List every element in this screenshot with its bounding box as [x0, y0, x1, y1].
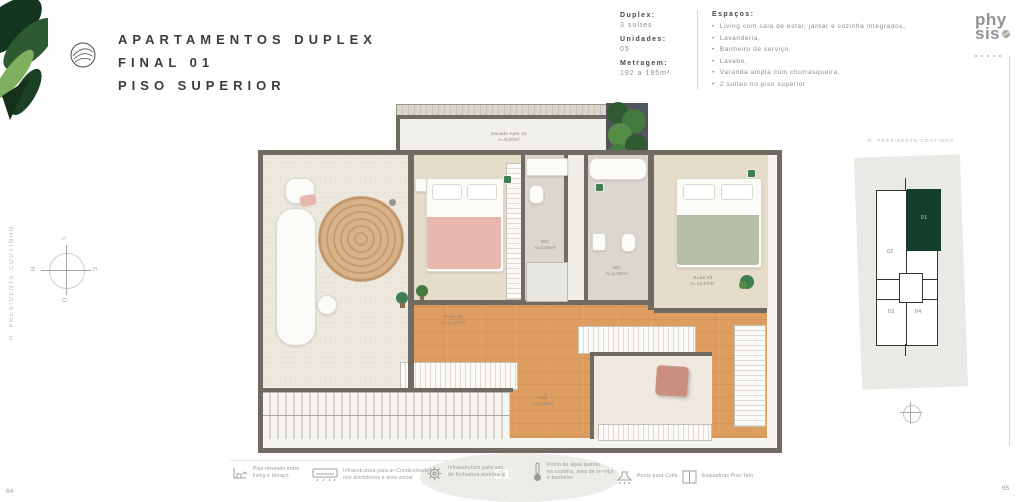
wc2-sink — [592, 233, 606, 251]
key-plan: R. PRESIDENTE COUTINHO 01 02 03 04 — [855, 138, 970, 438]
spec-label-unidades: Unidades: — [620, 36, 690, 43]
wall — [408, 150, 414, 390]
compass-rose: L N S O — [36, 238, 94, 304]
street-label-left: R. PRESIDENTE COUTINHO — [9, 200, 15, 340]
unit-01-highlight: 01 — [907, 189, 941, 251]
unit-divider — [906, 299, 907, 345]
suite02-area: A=17,07m² — [433, 320, 473, 326]
legend-text-line: e banheiro — [547, 475, 614, 482]
compass-circle — [49, 253, 85, 289]
wall — [584, 155, 588, 302]
legend-item-window: Esquadrias Piso-Teto — [682, 470, 753, 484]
title-leaf-icon — [70, 42, 96, 68]
compass-axis-horizontal — [41, 270, 91, 271]
level-icon — [232, 466, 248, 482]
pillow — [721, 184, 753, 200]
nightstand — [415, 178, 427, 192]
space-item: Varanda ampla com churrasqueira, — [712, 67, 912, 79]
door-marker — [748, 170, 755, 177]
thermometer-icon — [533, 462, 542, 482]
spaces-column: Espaços: Living com sala de estar, janta… — [712, 11, 912, 90]
bed-suite02 — [426, 178, 504, 272]
legend-text-line: de fechadura eletrônica — [448, 472, 505, 479]
keyplan-street-label: R. PRESIDENTE COUTINHO — [868, 138, 970, 143]
spec-value-unidades: 05 — [620, 46, 690, 53]
spaces-heading: Espaços: — [712, 11, 912, 18]
keyplan-compass-axis — [900, 412, 922, 413]
blanket-sage — [677, 215, 759, 265]
leaf-photo — [0, 0, 48, 124]
page-title: APARTAMENTOS DUPLEX FINAL 01 PISO SUPERI… — [118, 28, 377, 97]
wardrobe-hall — [578, 326, 696, 354]
logo-subtext — [975, 44, 1010, 62]
page-number-right: 65 — [1002, 485, 1009, 492]
side-table — [317, 295, 337, 315]
legend-text-line: Esquadrias Piso-Teto — [702, 473, 753, 480]
pillow — [683, 184, 715, 200]
wc2-bathtub — [589, 158, 647, 180]
pillow — [467, 184, 497, 200]
floor-plan: Sacada Apto 01 A=9,00m² — [255, 95, 775, 447]
keyplan-compass — [900, 402, 922, 424]
page-number-left: 64 — [6, 488, 13, 495]
right-page-divider — [1009, 56, 1010, 446]
space-item: Lavanderia, — [712, 33, 912, 45]
wc2-area: A=4,06m² — [597, 271, 637, 277]
title-line-1: APARTAMENTOS DUPLEX — [118, 28, 377, 51]
brochure-page: APARTAMENTOS DUPLEX FINAL 01 PISO SUPERI… — [0, 0, 1024, 502]
legend-item-lock: Infraestrutura para uso de fechadura ele… — [426, 465, 505, 482]
bed-suite03 — [676, 178, 762, 268]
title-line-3: PISO SUPERIOR — [118, 74, 377, 97]
wall — [263, 388, 513, 392]
legend-text-line: living e terraço — [253, 473, 299, 480]
leaf-photo-graphic — [0, 0, 48, 124]
legend-item-ac: Infraestrutura para ar-Condicionado nos … — [312, 468, 429, 482]
keyplan-axis-tick — [905, 178, 906, 190]
window-icon — [682, 470, 697, 484]
wall — [521, 155, 525, 302]
unit-04-label: 04 — [915, 309, 922, 315]
hall-label: Hall A=2,06m² — [523, 395, 563, 407]
space-item: 2 suítes no piso superior — [712, 79, 912, 91]
space-item: Banheiro de serviço, — [712, 44, 912, 56]
space-item: Lavabo, — [712, 56, 912, 68]
wardrobe-left — [400, 362, 518, 390]
suite03-label: Suíte 03 A=12,07m² — [683, 275, 723, 287]
suite03-area: A=12,07m² — [683, 281, 723, 287]
unit-02-label: 02 — [887, 249, 894, 255]
wc1-label: WC A=3,06m² — [525, 239, 565, 251]
suite02-label: Suíte 02 A=17,07m² — [433, 314, 473, 326]
hood-icon — [617, 471, 632, 484]
wc1-shower — [526, 262, 568, 302]
wall — [590, 352, 594, 439]
stair-handrail — [263, 415, 510, 416]
wardrobe-bottom — [598, 424, 712, 441]
unit-03-label: 03 — [888, 309, 895, 315]
building-core — [899, 273, 923, 303]
pouf — [655, 365, 689, 397]
sofa-chaise — [276, 208, 316, 346]
blanket-pink — [427, 217, 501, 269]
legend-text-line: Infraestrutura para ar-Condicionado — [343, 468, 429, 475]
keyplan-compass-circle — [903, 405, 921, 423]
wall — [654, 308, 767, 313]
balcony-label: Sacada Apto 01 A=9,00m² — [400, 131, 618, 143]
wardrobe-right — [734, 325, 766, 427]
logo-line-2: sis — [975, 27, 1000, 41]
spec-label-metragem: Metragem: — [620, 60, 690, 67]
legend-item-hot-water: Ponto de água quente na cozinha, área de… — [533, 462, 614, 482]
wc1-area: A=3,06m² — [525, 245, 565, 251]
legend-text-line: nos dormitórios e área social — [343, 475, 429, 482]
brand-logo: phy sis — [975, 13, 1010, 62]
spec-value-metragem: 192 a 195m² — [620, 70, 690, 77]
door-marker — [596, 184, 603, 191]
spaces-list: Living com sala de estar, jantar e cozin… — [712, 21, 912, 90]
specs-column: Duplex: 3 suítes Unidades: 05 Metragem: … — [620, 12, 690, 84]
space-item: Living com sala de estar, jantar e cozin… — [712, 21, 912, 33]
keyplan-compass-axis — [910, 402, 911, 424]
logo-leaf-icon — [1002, 30, 1010, 38]
legend-text-line: Infraestrutura para uso — [448, 465, 505, 472]
compass-letter-top: L — [62, 236, 68, 239]
wc1-counter — [526, 158, 568, 176]
legend-text-line: Ponto para Coifa — [637, 473, 678, 480]
ac-icon — [312, 468, 338, 482]
compass-letter-right: S — [93, 267, 99, 271]
wc2-toilet — [621, 233, 636, 252]
gear-icon — [426, 465, 443, 482]
keyplan-axis-tick — [905, 344, 906, 356]
unit-01-label: 01 — [907, 215, 941, 221]
round-rug — [318, 196, 404, 282]
spec-value-duplex: 3 suítes — [620, 22, 690, 29]
wc2-label: WC A=4,06m² — [597, 265, 637, 277]
indoor-plant-suite03 — [739, 275, 755, 293]
compass-letter-bottom: O — [62, 298, 68, 303]
floor-lamp — [389, 199, 396, 206]
header-divider — [697, 10, 698, 90]
wall — [648, 155, 654, 310]
title-line-2: FINAL 01 — [118, 51, 377, 74]
compass-letter-left: N — [31, 267, 37, 271]
indoor-plant-suite02 — [415, 285, 429, 301]
pillow — [432, 184, 462, 200]
legend-item-level: Piso nivelado entre living e terraço — [232, 466, 299, 482]
building-outline: 01 02 03 04 — [876, 190, 938, 346]
door-marker — [504, 176, 511, 183]
staircase — [263, 392, 510, 439]
balcony-label-line2: A=9,00m² — [400, 137, 618, 143]
wall — [590, 352, 712, 356]
indoor-plant-living — [395, 291, 410, 309]
legend-text-line: Piso nivelado entre — [253, 466, 299, 473]
legend-item-hood: Ponto para Coifa — [617, 471, 678, 484]
spec-label-duplex: Duplex: — [620, 12, 690, 19]
hall-area: A=2,06m² — [523, 401, 563, 407]
wc1-toilet — [529, 185, 544, 204]
